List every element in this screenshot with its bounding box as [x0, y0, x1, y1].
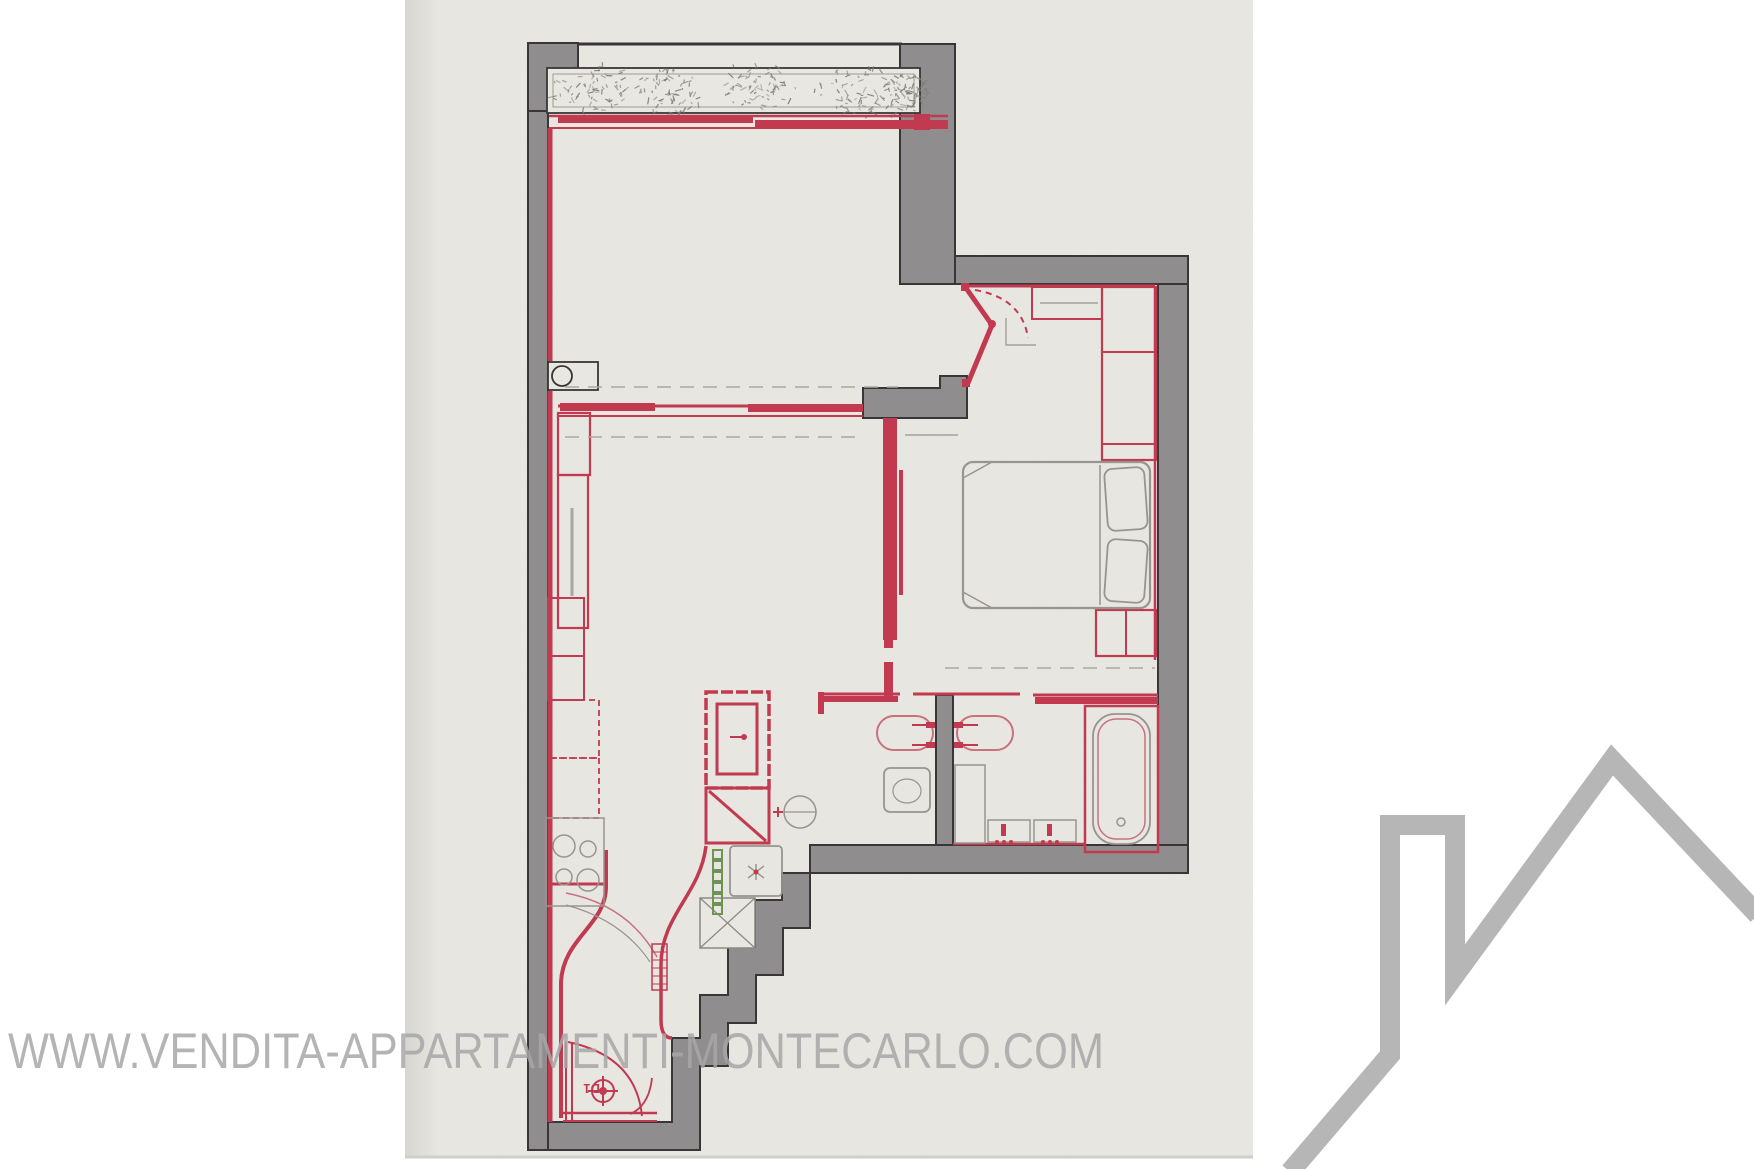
- wall-bath-divider: [936, 695, 953, 845]
- floorplan-scan: D1 WWW.VENDITA-APPARTAMENTI-MONTECARLO.C…: [0, 0, 1754, 1169]
- shaft-x-box: [700, 898, 755, 948]
- entry-door-label: D1: [583, 1081, 600, 1096]
- wall-right: [1158, 284, 1188, 873]
- screenshot-root: D1 WWW.VENDITA-APPARTAMENTI-MONTECARLO.C…: [0, 0, 1754, 1169]
- wall-left: [528, 43, 548, 1150]
- watermark-text: WWW.VENDITA-APPARTAMENTI-MONTECARLO.COM: [8, 1023, 1104, 1079]
- terrace-window-band: [549, 114, 948, 130]
- column-circle: [552, 366, 572, 386]
- vent-strip: [713, 850, 722, 914]
- wall-bedroom-top: [955, 256, 1188, 284]
- wall-bath-bottom: [810, 845, 1188, 873]
- agency-house-logo-icon: [1290, 760, 1754, 1169]
